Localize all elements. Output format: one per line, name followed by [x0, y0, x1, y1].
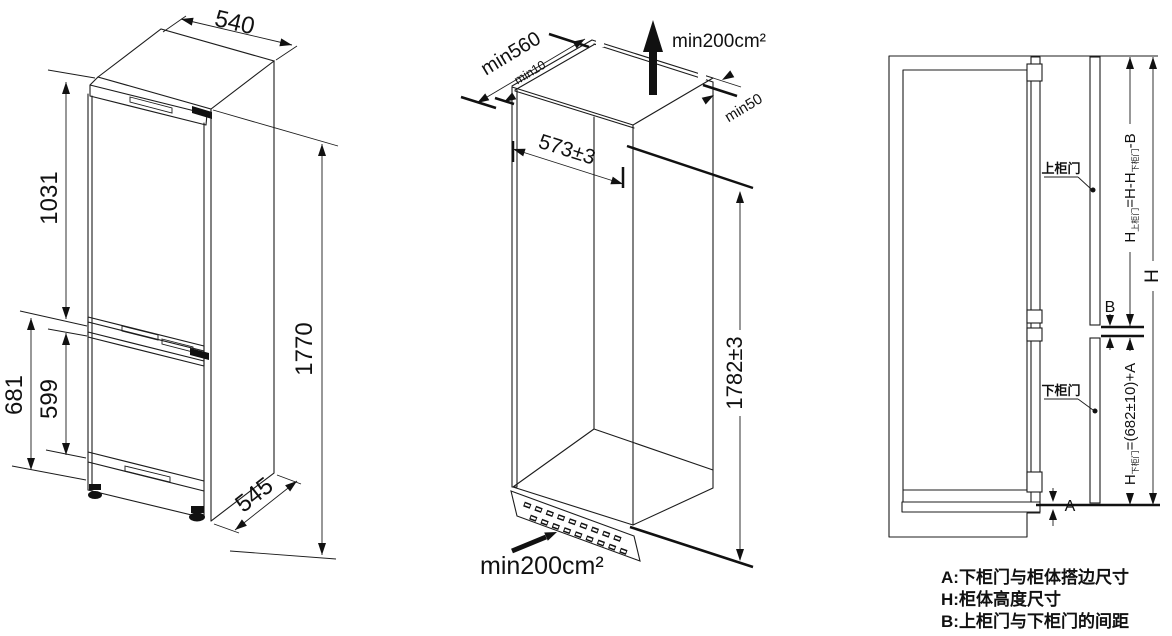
legend-line-b: B:上柜门与下柜门的间距 — [941, 611, 1129, 631]
b-label: B — [1105, 299, 1116, 316]
dim-540-label: 540 — [212, 5, 257, 40]
left-foot-bracket — [89, 484, 101, 490]
rear-notch-left — [596, 37, 604, 47]
installation-diagram-page: 540 1031 681 599 — [0, 0, 1172, 636]
lower-door-formula: H下柜门=(682±10)+A — [1122, 363, 1140, 485]
left-foot — [88, 491, 102, 499]
lower-door-callout: 下柜门 — [1041, 383, 1097, 414]
hinge-middle-upper — [1027, 310, 1042, 323]
lower-door-panel — [1090, 338, 1100, 503]
dimension-depth: 545 — [214, 472, 301, 533]
upper-door-callout: 上柜门 — [1041, 161, 1095, 193]
h-label: H — [1142, 269, 1163, 283]
dim-573-label: 573±3 — [536, 130, 598, 169]
upper-door-formula: H上柜门=H-H下柜门-B — [1122, 133, 1140, 242]
dimension-niche-width: 573±3 — [513, 130, 623, 188]
technical-drawing: 540 1031 681 599 — [0, 0, 1172, 636]
right-foot-bracket — [191, 506, 204, 513]
dimension-lower-outer-height: 681 — [1, 318, 35, 470]
dimension-niche-height: 1782±3 — [627, 146, 753, 567]
bottom-vent-label: min200cm² — [480, 552, 604, 580]
dim-1770-label: 1770 — [291, 322, 318, 375]
legend-line-a: A:下柜门与柜体搭边尺寸 — [941, 567, 1129, 587]
dim-599-label: 599 — [36, 379, 63, 419]
niche-isometric-view: 1782±3 573±3 min560 min10 — [461, 20, 766, 580]
legend-line-h: H:柜体高度尺寸 — [941, 589, 1061, 609]
dimension-lower-door-height: H下柜门=(682±10)+A — [1122, 338, 1140, 505]
cabinet-section-view: 上柜门 下柜门 H上柜门=H-H下柜门-B H B — [889, 56, 1163, 537]
bottom-extension-lines — [12, 450, 86, 480]
dimension-upper-height: 1031 — [36, 70, 95, 319]
dim-1782-label: 1782±3 — [722, 336, 747, 409]
dim-1031-label: 1031 — [36, 171, 63, 224]
dimension-lower-door-height: 599 — [36, 333, 70, 455]
top-vent-label: min200cm² — [672, 31, 766, 52]
top-vent-annotation: min200cm² — [643, 20, 766, 95]
hinge-bottom — [1027, 472, 1042, 492]
niche-body — [511, 37, 713, 561]
dim-545-label: 545 — [230, 472, 278, 518]
legend: A:下柜门与柜体搭边尺寸 H:柜体高度尺寸 B:上柜门与下柜门的间距 — [941, 567, 1129, 631]
rear-notch-right — [698, 70, 706, 80]
dimension-door-overlap: A — [1049, 488, 1076, 526]
cabinet-body — [889, 56, 1158, 537]
dimension-cabinet-height: H — [1142, 57, 1163, 505]
door-gap-datum — [1101, 327, 1144, 336]
fridge-isometric-view: 540 1031 681 599 — [1, 5, 338, 559]
dimension-upper-door-height: H上柜门=H-H下柜门-B — [1122, 57, 1140, 326]
a-label: A — [1065, 498, 1076, 515]
fridge-body — [88, 29, 274, 522]
dim-681-label: 681 — [1, 375, 28, 415]
dimension-door-gap: B — [1105, 299, 1116, 350]
hinge-top — [1027, 64, 1042, 81]
up-arrow-icon — [643, 20, 663, 52]
upper-door-label: 上柜门 — [1041, 161, 1080, 176]
right-foot — [189, 513, 205, 522]
hinge-middle-lower — [1027, 328, 1042, 341]
lower-door-label: 下柜门 — [1041, 383, 1080, 398]
dim-min50-label: min50 — [722, 90, 766, 126]
